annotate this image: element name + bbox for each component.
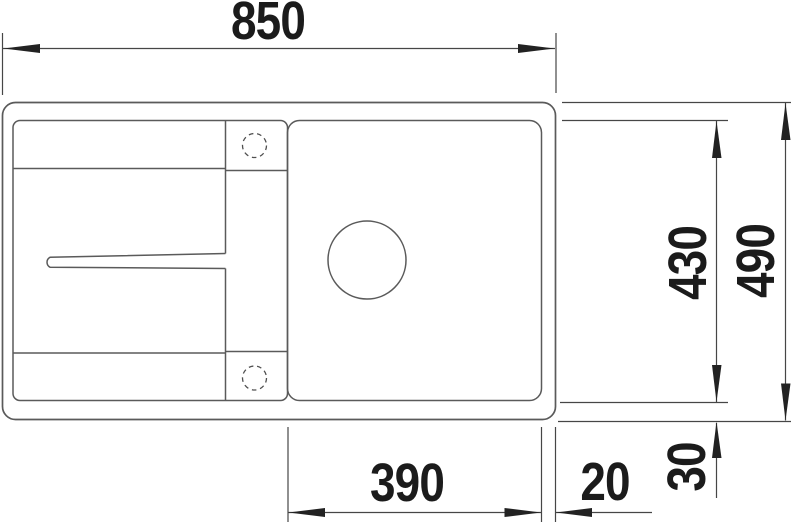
arrow-left-icon (289, 508, 326, 517)
sink-outer-rim (3, 103, 556, 420)
basin-outline (288, 121, 542, 401)
dimension-20-label: 20 (580, 455, 629, 509)
tap-hole-top-circle (243, 134, 267, 158)
drainboard-outline (13, 121, 288, 401)
dimension-30-label: 30 (660, 442, 714, 491)
dimension-850-label: 850 (231, 0, 305, 48)
arrow-up-icon (781, 103, 791, 140)
sink-dimension-drawing: 850 430 490 30 390 20 (0, 0, 800, 527)
drain-groove (47, 254, 225, 269)
dimension-390-label: 390 (370, 456, 444, 510)
arrow-left-icon (4, 44, 41, 53)
dimension-490-label: 490 (729, 224, 783, 298)
arrow-up-icon (712, 121, 722, 158)
tap-hole-bottom-circle (243, 366, 267, 390)
drain-hole-circle (328, 221, 406, 299)
sink-body (3, 103, 556, 420)
arrow-down-icon (712, 365, 722, 402)
arrow-right-icon (518, 44, 555, 53)
dimension-430-label: 430 (661, 226, 715, 300)
arrow-right-icon (505, 508, 542, 517)
arrow-down-icon (781, 384, 791, 421)
